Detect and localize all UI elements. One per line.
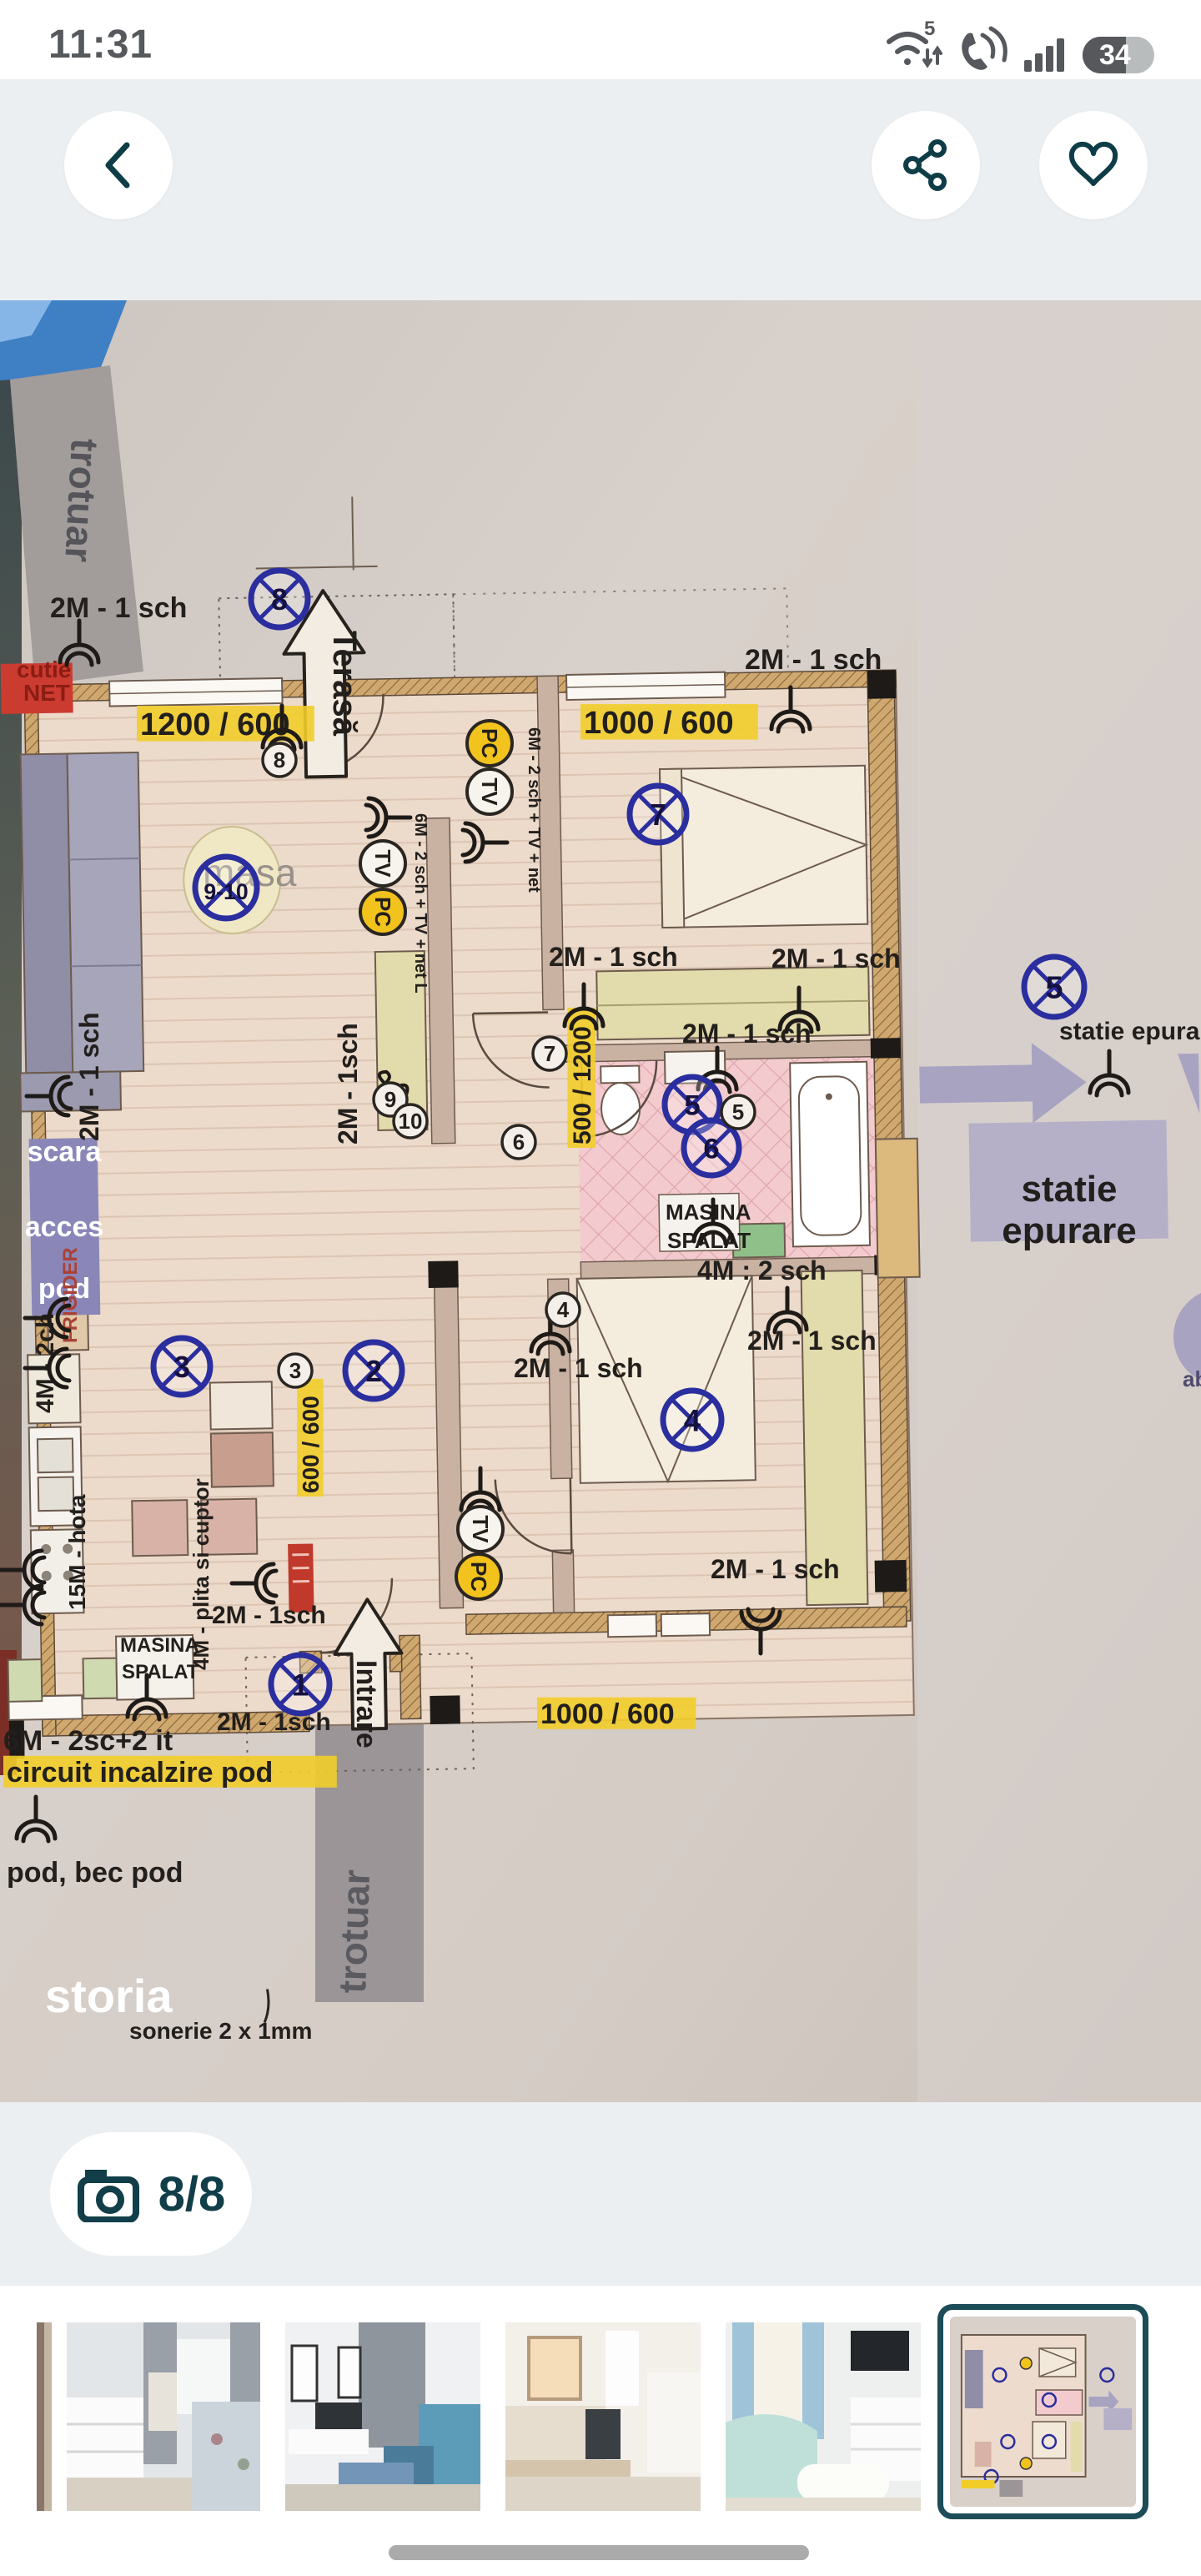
- thumbnail-floorplan-selected[interactable]: [937, 2304, 1148, 2519]
- clock: 11:31: [48, 22, 153, 68]
- switch-number-icon: 3: [279, 1354, 312, 1387]
- pc-outlet-icon: PC: [360, 889, 405, 934]
- plan-label: circuit incalzire pod: [7, 1757, 273, 1789]
- svg-text:PC: PC: [477, 728, 502, 758]
- switch-number-icon: 10: [394, 1104, 427, 1138]
- svg-text:9-10: 9-10: [204, 879, 248, 904]
- svg-text:8: 8: [271, 583, 288, 616]
- svg-text:7: 7: [650, 798, 666, 832]
- photo-counter-band: 8/8: [0, 2102, 1201, 2286]
- thumbnail-scrollbar[interactable]: [389, 2545, 809, 2560]
- wifi-icon: 5: [889, 20, 941, 65]
- plan-label: trotuar: [330, 1869, 378, 1994]
- switch-number-icon: 4: [546, 1293, 580, 1326]
- svg-text:7: 7: [544, 1041, 555, 1066]
- camera-icon: [77, 2166, 140, 2222]
- tv-outlet-icon: TV: [458, 1507, 503, 1552]
- plan-label: 500 / 1200: [569, 1026, 596, 1145]
- signal-icon: [1024, 38, 1064, 72]
- ceiling-light-icon: 2: [345, 1342, 402, 1399]
- gallery-photo-floorplan[interactable]: trotuartrotuar2M - 1 schcutieNETTerasă12…: [0, 300, 1201, 2102]
- svg-text:TV: TV: [370, 849, 395, 878]
- chevron-left-icon: [92, 138, 145, 192]
- tv-outlet-icon: TV: [360, 841, 405, 886]
- thumbnail-kitchen[interactable]: [505, 2322, 701, 2511]
- plan-label: scara: [28, 1136, 103, 1168]
- gallery-screen: { "status_bar": { "time": "11:31", "batt…: [0, 0, 1201, 2576]
- plan-label: 2M - 1 sch: [745, 644, 882, 676]
- svg-text:5: 5: [732, 1099, 744, 1124]
- thumbnail-bedroom-2[interactable]: [726, 2322, 921, 2511]
- photo-counter[interactable]: 8/8: [50, 2132, 252, 2256]
- plan-label: Intrare: [350, 1660, 382, 1748]
- ceiling-light-icon: 8: [251, 571, 308, 627]
- plan-label: 6M - 2 sch + TV + net L: [411, 813, 430, 994]
- svg-text:4: 4: [684, 1403, 701, 1437]
- plan-label: acces: [25, 1211, 104, 1243]
- plan-label: 2M - 1 sch: [50, 592, 187, 624]
- battery-icon: 34: [1083, 37, 1154, 73]
- ceiling-light-icon: 9-10: [195, 857, 257, 918]
- ceiling-light-icon: 3: [153, 1338, 210, 1395]
- thumbnail-strip[interactable]: [0, 2286, 1201, 2576]
- plan-label: MASINA: [120, 1634, 199, 1657]
- svg-text:TV: TV: [468, 1515, 493, 1543]
- svg-text:5: 5: [684, 1090, 700, 1122]
- plan-label: SPALAT: [122, 1661, 199, 1683]
- plan-label: pod, bec pod: [7, 1857, 183, 1889]
- plan-label: cutie: [17, 657, 71, 682]
- plan-label: 1000 / 600: [540, 1698, 675, 1730]
- plan-label: 15M - hota: [64, 1494, 90, 1610]
- svg-text:10: 10: [399, 1109, 423, 1134]
- svg-text:PC: PC: [466, 1562, 491, 1592]
- thumbnail-living-room[interactable]: [285, 2322, 480, 2511]
- ceiling-light-icon: 1: [271, 1655, 329, 1713]
- svg-text:3: 3: [289, 1358, 301, 1383]
- svg-text:34: 34: [1099, 39, 1131, 71]
- ceiling-light-icon: 7: [630, 786, 686, 843]
- plan-label: trotuar: [57, 437, 107, 563]
- heart-icon: [1065, 137, 1122, 194]
- plan-label: storia: [45, 1970, 173, 2022]
- switch-number-icon: 6: [502, 1125, 535, 1159]
- thumbnail-partial[interactable]: [37, 2322, 52, 2511]
- ceiling-light-icon: 6: [684, 1120, 739, 1175]
- svg-text:6: 6: [703, 1134, 719, 1165]
- plan-label: MASINA: [666, 1200, 751, 1225]
- plan-label: 600 / 600: [298, 1396, 324, 1493]
- plan-label: NET: [23, 680, 70, 706]
- svg-text:8: 8: [274, 747, 285, 772]
- svg-text:3: 3: [173, 1351, 190, 1384]
- svg-text:5: 5: [1045, 971, 1063, 1006]
- svg-text:1: 1: [292, 1668, 309, 1702]
- svg-text:5: 5: [924, 20, 935, 40]
- plan-label: 6M - 2 sch + TV + net: [525, 727, 543, 893]
- wifi-calling-icon: [962, 28, 1005, 70]
- plan-label: 2M - 1 sch: [549, 942, 678, 972]
- plan-label: 2M - 1 sch: [711, 1554, 840, 1584]
- plan-label: 2M - 1sch: [333, 1023, 363, 1145]
- svg-text:4: 4: [557, 1297, 570, 1322]
- ceiling-light-icon: 4: [663, 1391, 721, 1449]
- plan-label: 2M - 1 sch: [74, 1012, 104, 1141]
- pc-outlet-icon: PC: [467, 721, 512, 766]
- floorplan-image: trotuartrotuar2M - 1 schcutieNETTerasă12…: [0, 300, 1201, 2102]
- plan-label: 4M - 2ch: [32, 1313, 59, 1413]
- pc-outlet-icon: PC: [456, 1554, 501, 1599]
- switch-number-icon: 7: [533, 1037, 566, 1070]
- photo-counter-label: 8/8: [158, 2166, 226, 2222]
- plan-label: 2M - 1 sch: [771, 943, 901, 974]
- plan-label: statie: [1022, 1169, 1118, 1210]
- tv-outlet-icon: TV: [467, 769, 512, 814]
- status-icons: 5 34: [884, 20, 1159, 83]
- plan-label: 2M - 1 sch: [514, 1353, 643, 1383]
- plan-label: statie epurare: [1059, 1018, 1201, 1045]
- thumbnail-bedroom-1[interactable]: [67, 2322, 260, 2511]
- svg-text:PC: PC: [370, 897, 395, 927]
- status-bar: 11:31 5: [0, 0, 1201, 79]
- plan-label: epurare: [1002, 1210, 1136, 1251]
- plan-label: 4M : 2 sch: [697, 1255, 827, 1285]
- back-button[interactable]: [64, 111, 173, 219]
- switch-number-icon: 5: [721, 1095, 755, 1129]
- svg-text:TV: TV: [477, 777, 502, 806]
- share-icon: [897, 137, 954, 194]
- plan-label: 6M - 2sc+2 it: [3, 1725, 173, 1757]
- plan-label: 2M - 1sch: [212, 1602, 326, 1629]
- plan-label: Terasă: [326, 631, 363, 737]
- svg-text:2: 2: [365, 1355, 382, 1388]
- plan-label: 1000 / 600: [584, 706, 734, 741]
- plan-label: abs: [1183, 1366, 1201, 1391]
- svg-text:6: 6: [513, 1130, 525, 1155]
- svg-text:9: 9: [384, 1087, 396, 1112]
- share-button[interactable]: [872, 111, 980, 219]
- ceiling-light-icon: 5: [1024, 957, 1084, 1017]
- favorite-button[interactable]: [1039, 111, 1148, 219]
- switch-number-icon: 8: [263, 743, 296, 777]
- gallery-header: [0, 79, 1201, 300]
